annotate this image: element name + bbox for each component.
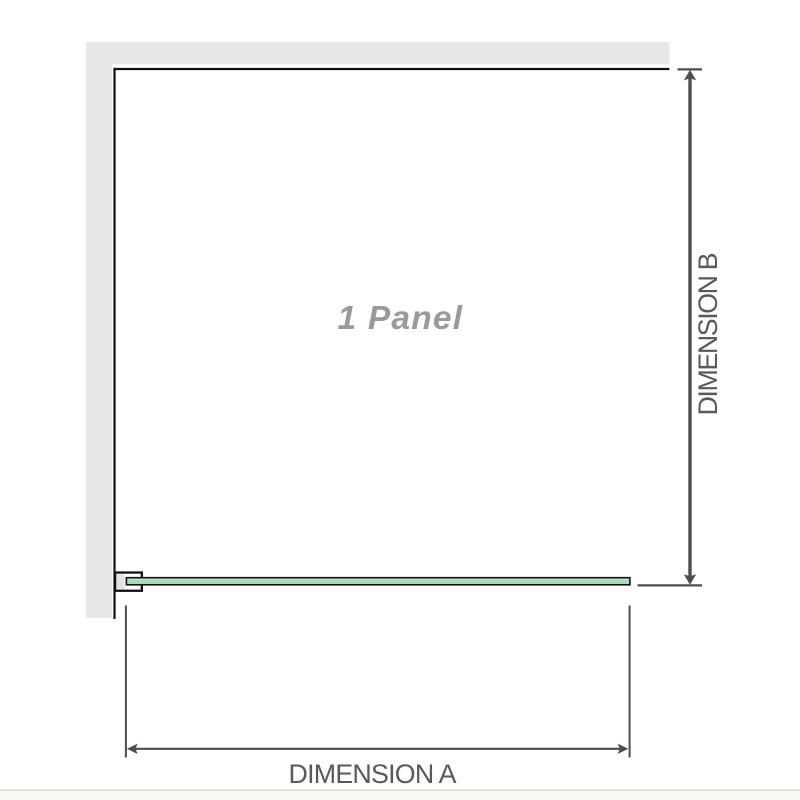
svg-text:DIMENSION A: DIMENSION A xyxy=(289,759,457,789)
svg-text:DIMENSION B: DIMENSION B xyxy=(693,253,723,416)
